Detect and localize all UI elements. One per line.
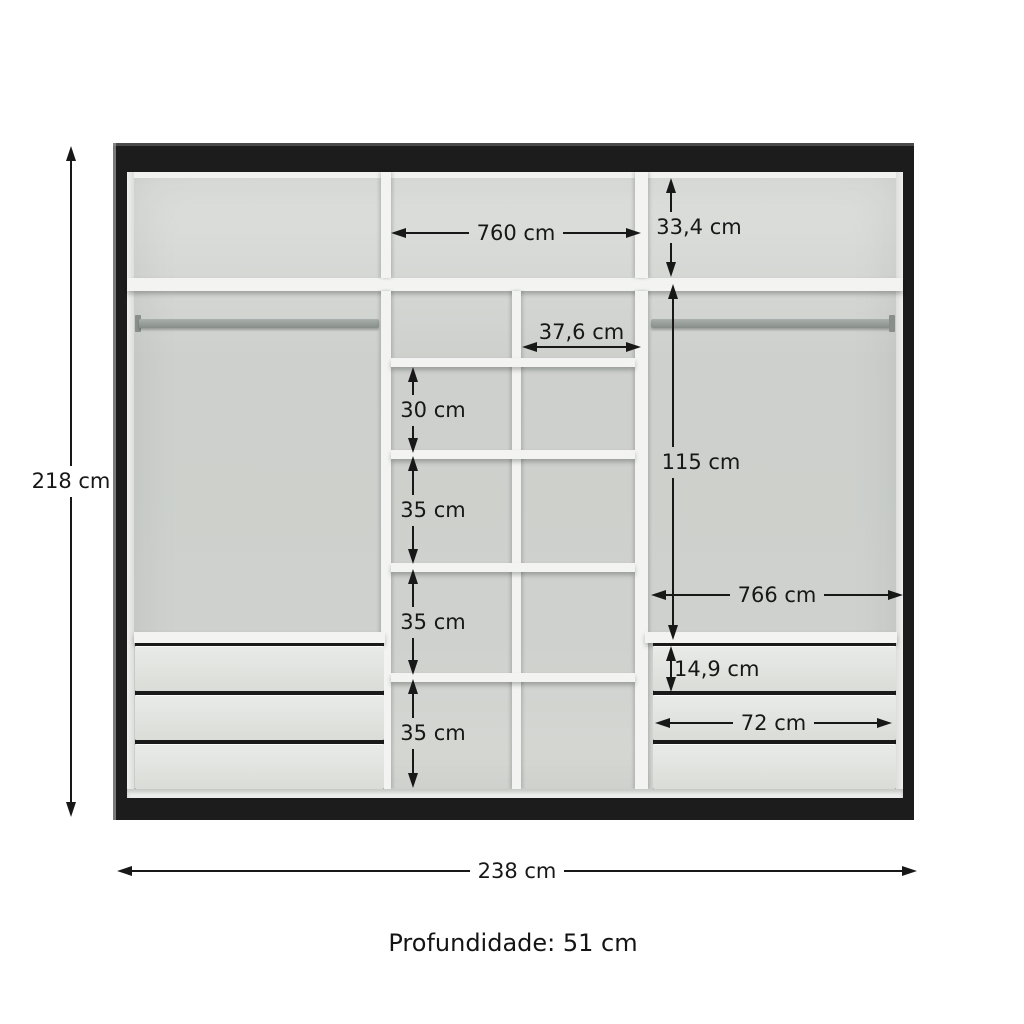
frame-left-highlight (113, 143, 116, 820)
left-hanging-rod (139, 319, 379, 328)
dim-overall-width-label: 238 cm (470, 861, 565, 882)
dim-drawer-height-label: 14,9 cm (674, 657, 759, 681)
arrowhead-down (66, 802, 76, 817)
middle-divider-right (635, 291, 648, 789)
dim-right-section-width: 766 cm (651, 589, 903, 601)
dim-cubby-width-label: 37,6 cm (539, 320, 624, 344)
arrowhead-left (117, 866, 132, 876)
wardrobe-interior (127, 172, 903, 798)
cubby-shelf-2 (391, 450, 635, 459)
dim-cubby-width: 37,6 cm (522, 341, 641, 353)
cubby-shelf-3 (391, 563, 635, 572)
dim-row4-height: 35 cm (407, 679, 419, 788)
interior-ceiling (127, 172, 903, 178)
cubby-shelf-1 (391, 358, 635, 367)
interior-left-wall (127, 172, 134, 798)
dim-top-section-height-label: 33,4 cm (656, 212, 741, 243)
cubby-shelf-4 (391, 673, 635, 682)
dim-overall-height: 218 cm (65, 146, 77, 817)
dim-drawer-width: 72 cm (655, 717, 892, 729)
frame-top-highlight (113, 143, 914, 146)
dim-row2-height-label: 35 cm (400, 495, 465, 526)
interior-right-wall (896, 172, 903, 798)
top-full-shelf (127, 278, 903, 291)
dim-right-section-height: 115 cm (667, 284, 679, 640)
dim-row4-height-label: 35 cm (400, 718, 465, 749)
dim-top-middle-width-label: 760 cm (469, 223, 564, 244)
dim-drawer-height: 14,9 cm (665, 646, 677, 692)
dim-row2-height: 35 cm (407, 456, 419, 564)
arrowhead-right (902, 866, 917, 876)
dim-overall-width: 238 cm (117, 865, 917, 877)
left-drawer-2 (135, 695, 384, 740)
top-divider-left (381, 172, 391, 278)
dim-top-section-height: 33,4 cm (665, 178, 677, 277)
dim-right-section-height-label: 115 cm (662, 447, 741, 478)
dim-overall-height-label: 218 cm (32, 466, 111, 497)
dim-row1-height: 30 cm (407, 367, 419, 453)
interior-floor (127, 789, 903, 798)
dim-row1-height-label: 30 cm (400, 395, 465, 426)
dim-row3-height-label: 35 cm (400, 607, 465, 638)
top-divider-right (635, 172, 648, 278)
depth-note: Profundidade: 51 cm (388, 929, 637, 957)
right-rod-bracket (889, 315, 895, 332)
right-hanging-rod (651, 319, 891, 328)
arrowhead-up (66, 146, 76, 161)
dim-top-middle-width: 760 cm (391, 227, 641, 239)
left-drawer-1 (135, 646, 384, 691)
right-drawer-top-shelf (645, 632, 897, 643)
left-drawer-top-shelf (134, 632, 385, 643)
dim-row3-height: 35 cm (407, 569, 419, 675)
right-drawer-3 (653, 744, 896, 789)
left-drawer-stack (135, 643, 384, 789)
dim-drawer-width-label: 72 cm (733, 713, 814, 734)
left-drawer-3 (135, 744, 384, 789)
dim-right-section-width-label: 766 cm (730, 585, 825, 606)
wardrobe-dimension-diagram: 218 cm 238 cm Profundidade: 51 cm 760 cm… (0, 0, 1024, 1024)
